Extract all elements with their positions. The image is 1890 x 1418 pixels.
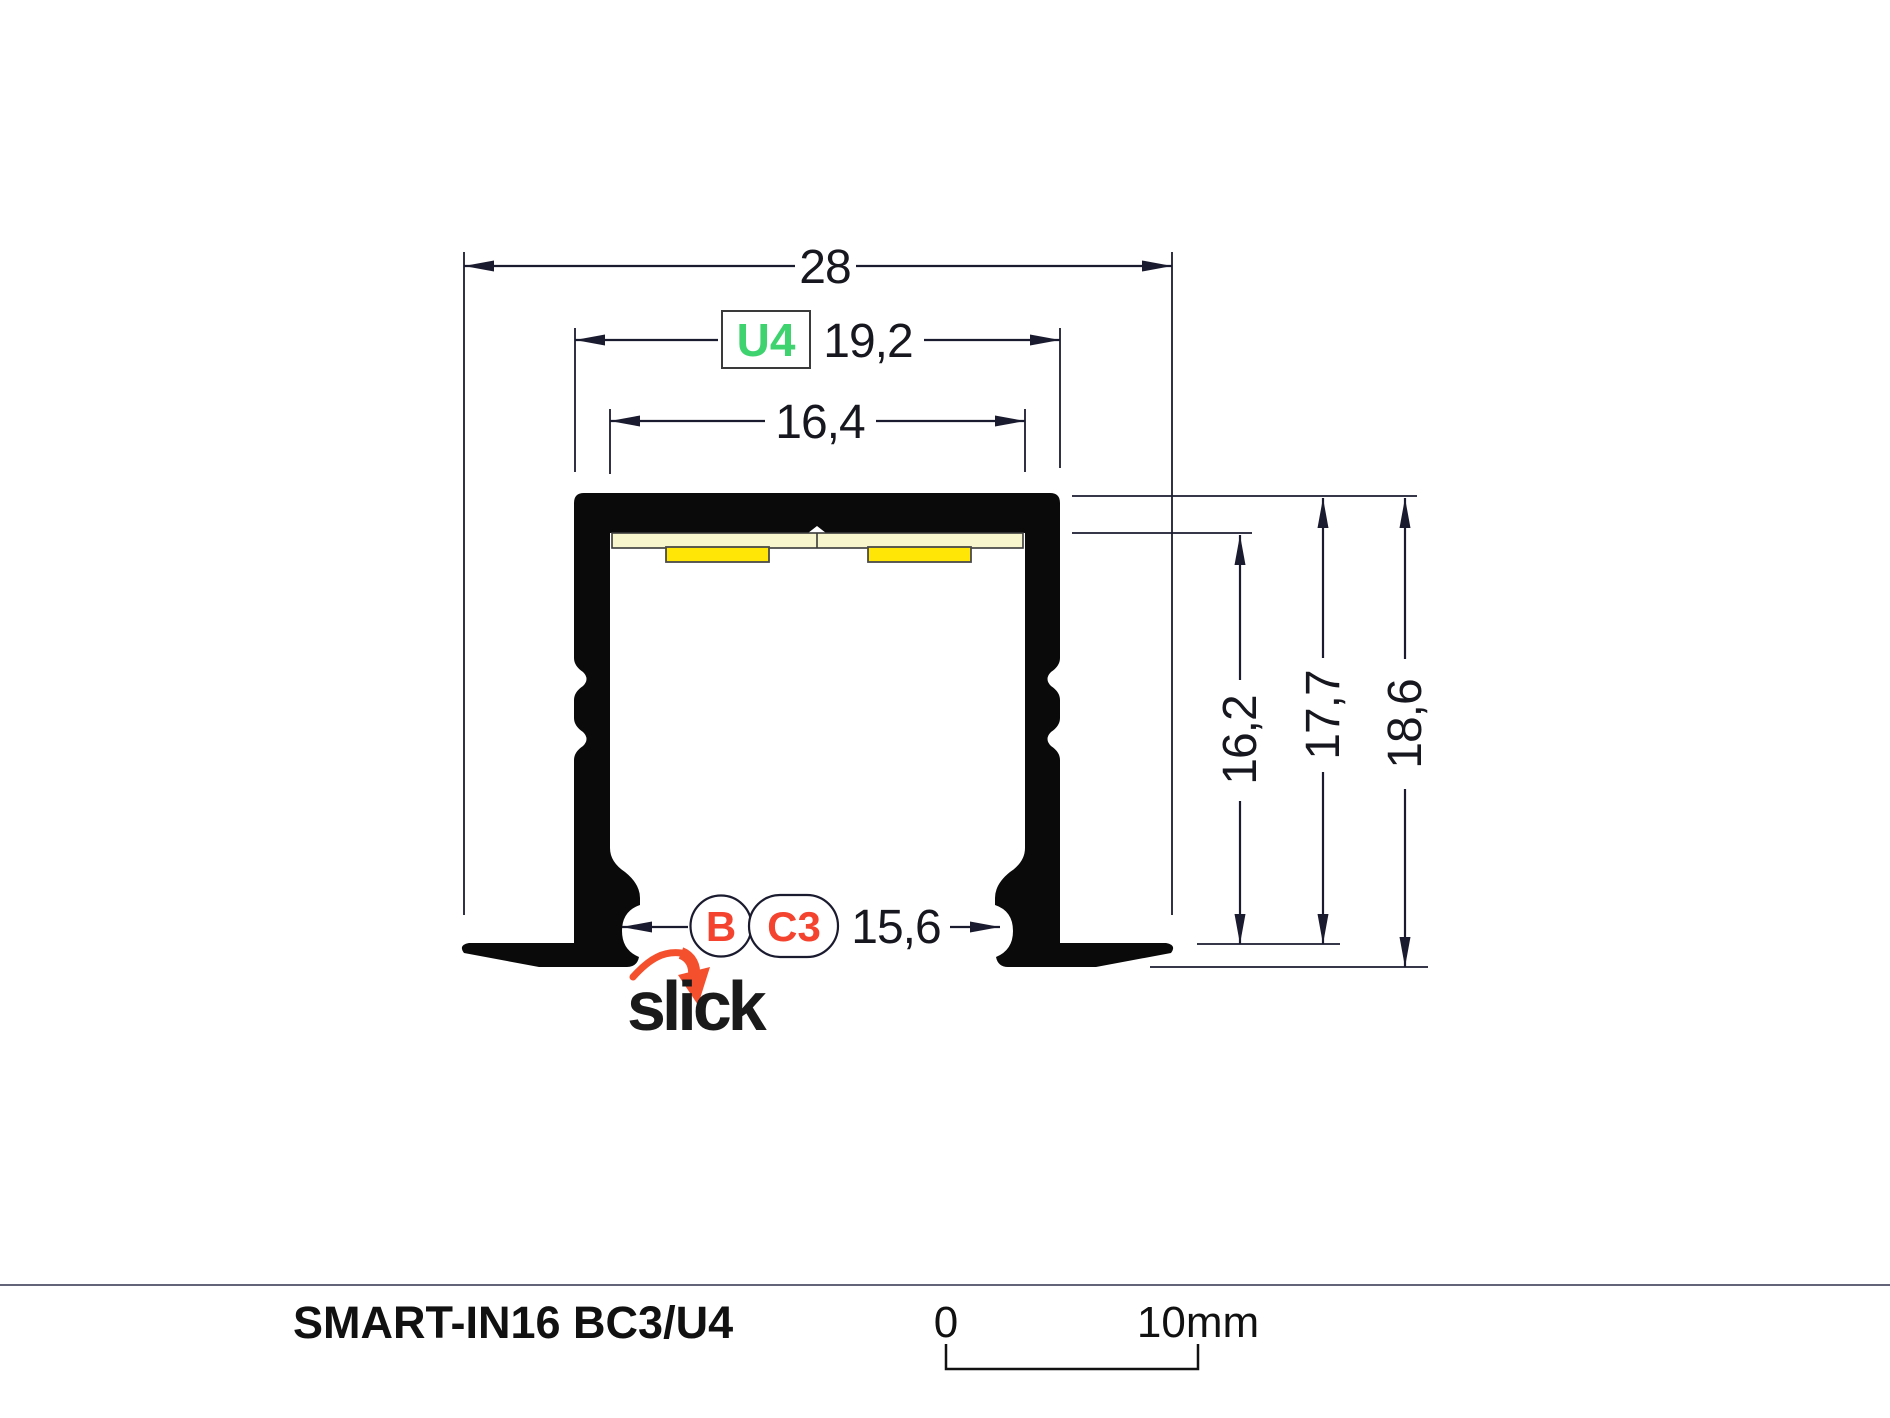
dim-u4-width: U4 19,2 — [575, 311, 1060, 368]
dim-total-height-value: 18,6 — [1379, 679, 1432, 768]
scale-end-label: 10mm — [1137, 1298, 1259, 1347]
slick-logo-text: slick — [627, 967, 767, 1045]
technical-drawing-page: 28 U4 19,2 16,4 16,2 17,7 18,6 B — [0, 0, 1890, 1418]
footer: SMART-IN16 BC3/U4 0 10mm — [0, 1285, 1890, 1369]
dim-u4-width-value: 19,2 — [823, 315, 912, 368]
dim-total-width-value: 28 — [799, 241, 850, 294]
led-emitter-right — [868, 547, 971, 562]
c3-variant-label: C3 — [767, 903, 821, 950]
scale-bracket — [946, 1344, 1198, 1369]
b-variant-label: B — [706, 903, 736, 950]
dim-mid-height: 17,7 — [1297, 498, 1350, 944]
profile-title: SMART-IN16 BC3/U4 — [293, 1297, 733, 1348]
dim-inner-height: 16,2 — [1214, 535, 1267, 944]
dim-opening-width-value: 15,6 — [851, 901, 940, 954]
dim-mid-height-value: 17,7 — [1297, 670, 1350, 759]
dim-inner-width-value: 16,4 — [775, 396, 865, 449]
dim-opening-width: B C3 15,6 — [622, 895, 1000, 957]
scale-bar: 0 10mm — [934, 1298, 1259, 1369]
dim-total-height: 18,6 — [1379, 498, 1432, 967]
dim-inner-height-value: 16,2 — [1214, 695, 1267, 784]
dim-inner-width: 16,4 — [610, 396, 1025, 449]
led-emitter-left — [666, 547, 769, 562]
slick-logo: slick — [627, 953, 767, 1045]
u4-cover-label: U4 — [737, 314, 796, 366]
dim-total-width: 28 — [464, 241, 1172, 294]
scale-zero-label: 0 — [934, 1298, 958, 1347]
